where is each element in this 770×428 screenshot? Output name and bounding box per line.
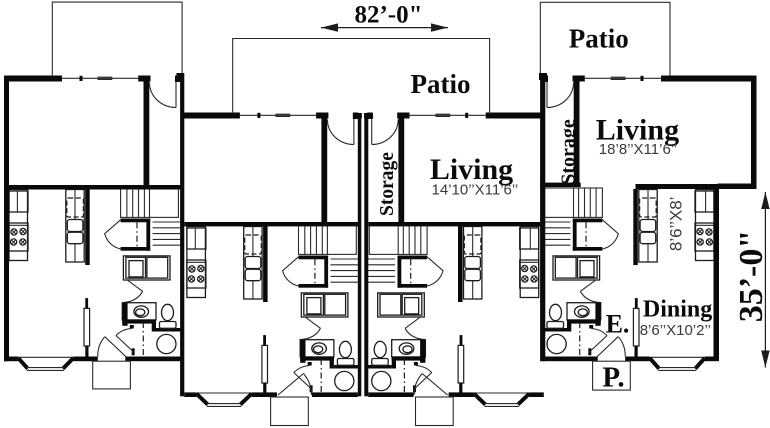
svg-text:8’6’’X10’2’’: 8’6’’X10’2’’ bbox=[640, 322, 711, 339]
svg-text:E.: E. bbox=[606, 310, 630, 339]
svg-text:82’-0": 82’-0" bbox=[354, 2, 422, 29]
svg-text:14’10’’X11’6’’: 14’10’’X11’6’’ bbox=[432, 182, 519, 199]
svg-text:Patio: Patio bbox=[411, 69, 471, 99]
svg-text:Storage: Storage bbox=[558, 119, 580, 185]
svg-text:Storage: Storage bbox=[377, 152, 398, 216]
svg-text:P.: P. bbox=[602, 362, 624, 394]
svg-text:8’6’’X8’: 8’6’’X8’ bbox=[667, 197, 686, 252]
svg-text:18’8’’X11’6’’: 18’8’’X11’6’’ bbox=[599, 141, 677, 158]
svg-text:Patio: Patio bbox=[569, 24, 629, 54]
svg-text:35’-0": 35’-0" bbox=[733, 230, 770, 323]
svg-text:Dining: Dining bbox=[643, 297, 712, 323]
